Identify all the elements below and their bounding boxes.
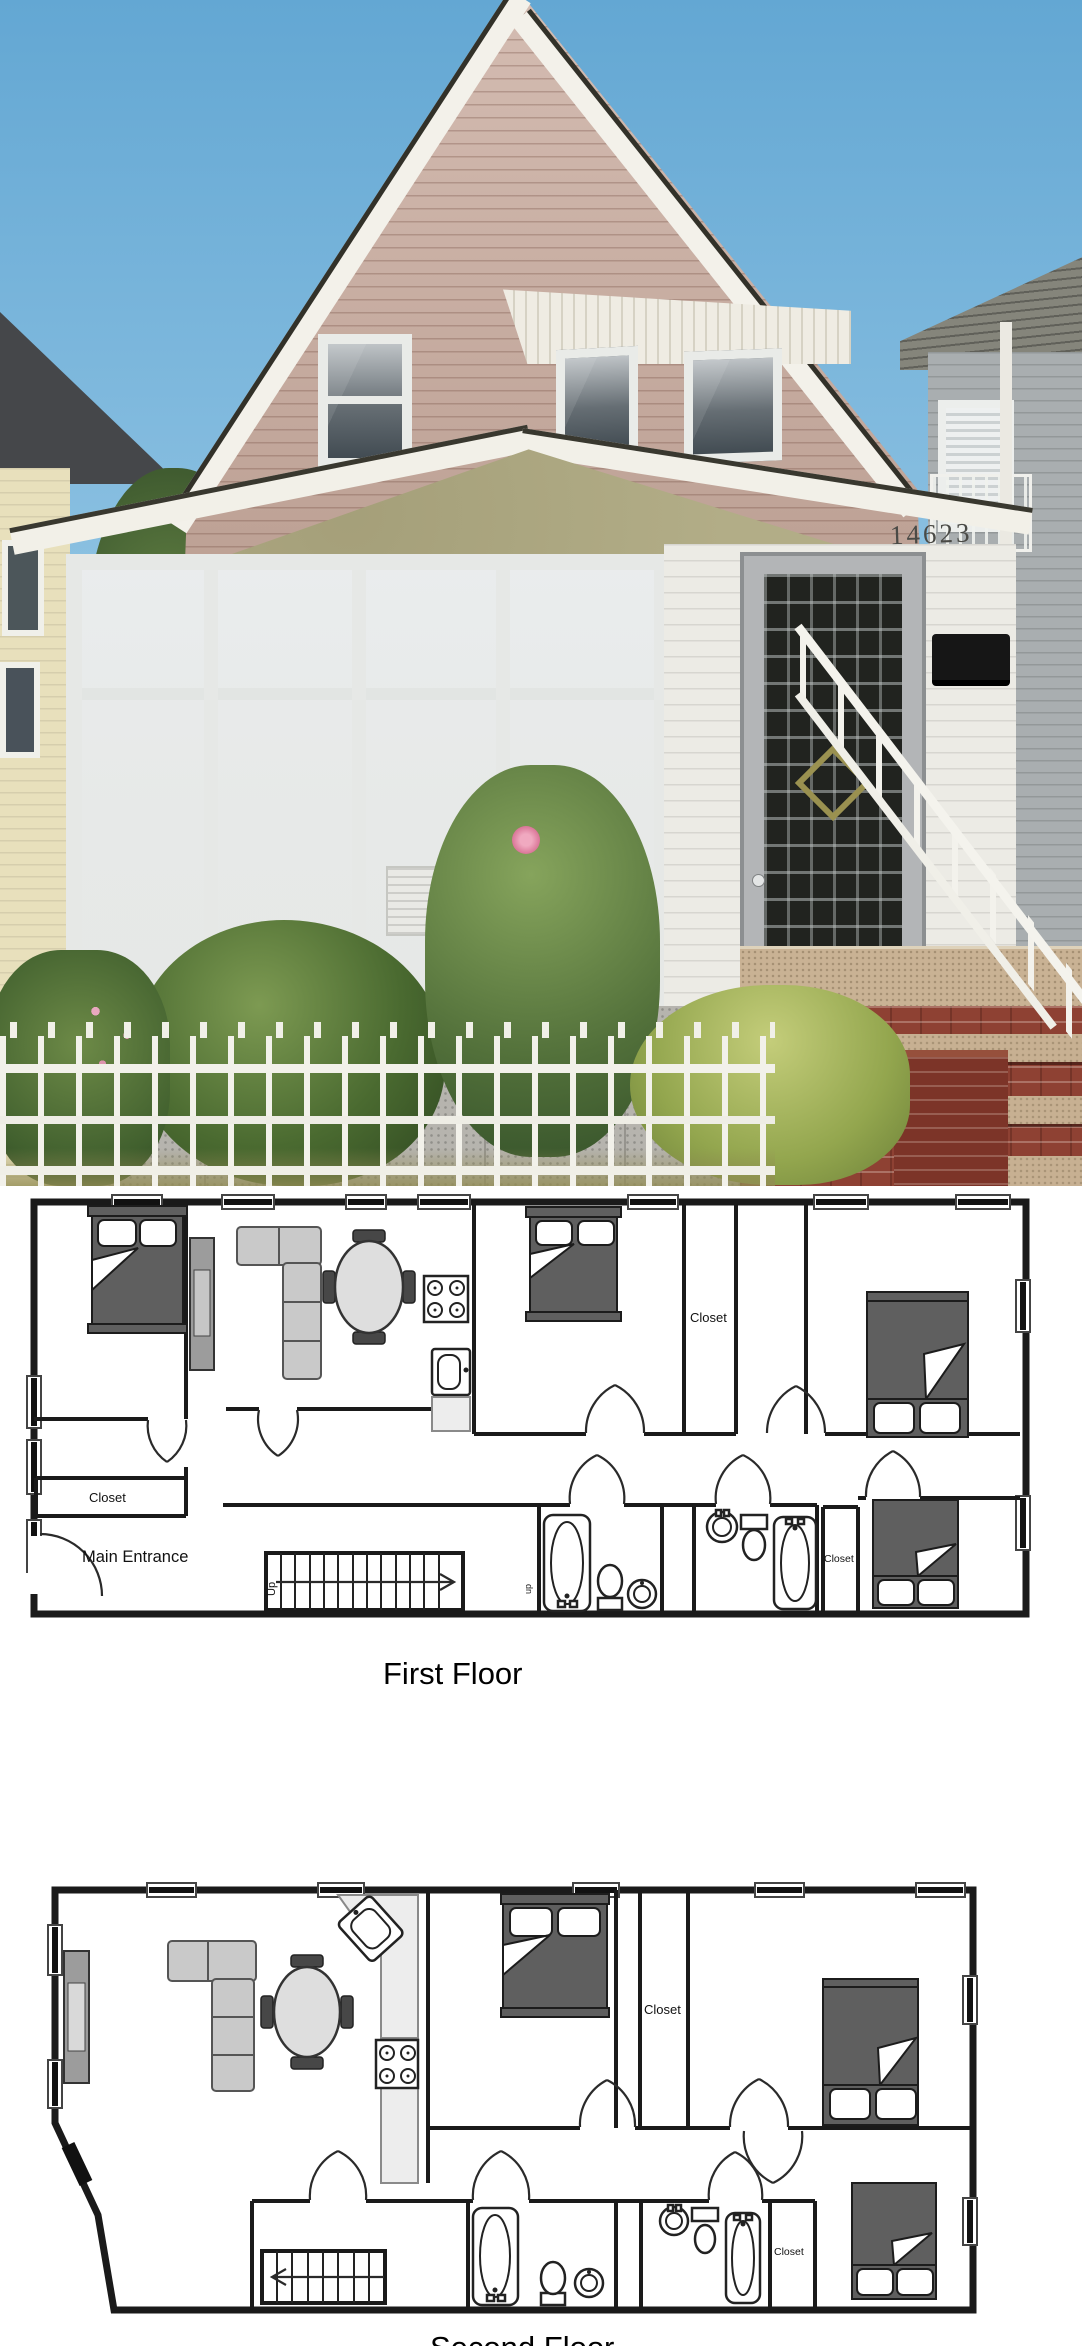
stove bbox=[424, 1276, 468, 1322]
left-neighbor-window bbox=[2, 540, 44, 636]
window-sash bbox=[318, 396, 412, 404]
rose-flower bbox=[512, 826, 540, 854]
stove bbox=[376, 2040, 418, 2088]
closet-label: Closet bbox=[690, 1310, 727, 1325]
mailbox bbox=[932, 634, 1010, 686]
tv-screen bbox=[68, 1983, 85, 2051]
bed-master bbox=[88, 1206, 187, 1333]
fence-rail bbox=[0, 1064, 775, 1073]
porch-window-pane bbox=[82, 570, 204, 996]
closet-label: Closet bbox=[89, 1490, 126, 1505]
bed-back bbox=[852, 2183, 936, 2299]
bed-back bbox=[873, 1500, 958, 1608]
bathroom-front bbox=[544, 1515, 656, 1611]
kitchen-sink bbox=[432, 1349, 470, 1431]
bathroom-back bbox=[707, 1510, 816, 1609]
closet-label: Closet bbox=[644, 2002, 681, 2017]
bed-right bbox=[823, 1979, 918, 2125]
stairs bbox=[262, 2251, 385, 2303]
closet-label: Closet bbox=[824, 1553, 854, 1565]
bed-right bbox=[867, 1292, 968, 1437]
fence-rail bbox=[0, 1116, 775, 1124]
stairs: Up up bbox=[266, 1553, 533, 1610]
bathroom-back bbox=[660, 2205, 760, 2303]
second-floor-caption: Second Floor bbox=[430, 2330, 614, 2346]
bed-middle bbox=[501, 1894, 609, 2017]
left-neighbor-window bbox=[0, 662, 40, 758]
fence-rail bbox=[0, 1166, 775, 1175]
brick-newel-post bbox=[894, 1050, 1008, 1186]
dining-table bbox=[261, 1955, 353, 2069]
closet-label: Closet bbox=[774, 2246, 804, 2258]
wardrobe-door bbox=[194, 1270, 210, 1336]
iron-fence bbox=[0, 1036, 775, 1186]
stairs-up-small-label: up bbox=[523, 1584, 533, 1594]
main-entrance-label: Main Entrance bbox=[82, 1548, 188, 1566]
door-knob bbox=[752, 874, 765, 887]
sofa-sectional bbox=[168, 1941, 256, 2091]
bathroom-front bbox=[473, 2208, 603, 2305]
first-floor-caption: First Floor bbox=[383, 1656, 523, 1692]
house-photo: 14623 bbox=[0, 0, 1082, 1186]
house-number: 14623 bbox=[889, 516, 1020, 557]
dining-table bbox=[323, 1230, 415, 1344]
listing-image: 14623 bbox=[0, 0, 1082, 2346]
bay-window bbox=[684, 348, 782, 463]
bed-middle bbox=[526, 1207, 621, 1321]
stairs-up-label: Up bbox=[266, 1582, 278, 1596]
second-floor-plan: Closet Closet bbox=[40, 1883, 980, 2346]
first-floor-plan: Up up bbox=[26, 1194, 1058, 1624]
sofa-sectional bbox=[237, 1227, 321, 1379]
